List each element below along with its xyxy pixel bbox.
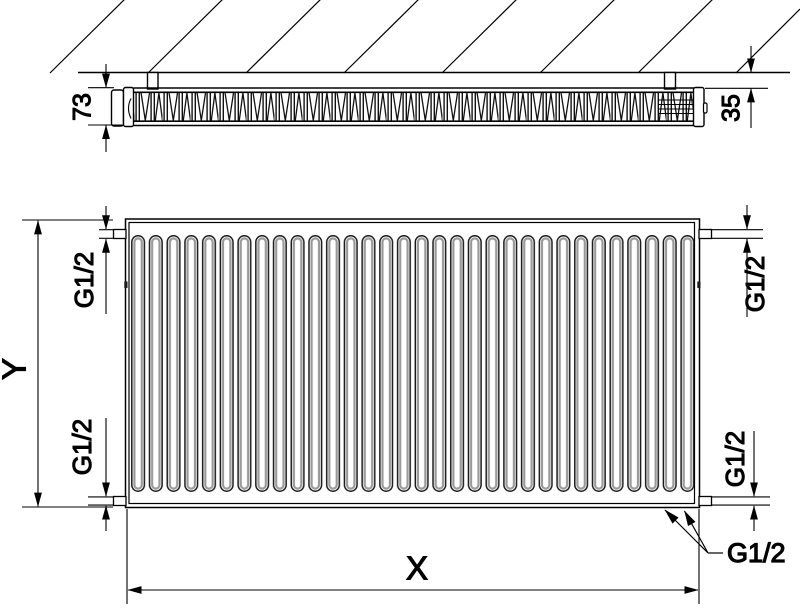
radiator-cross-section xyxy=(112,88,708,127)
dimension-thread-bottom-right: G1/2 xyxy=(712,431,771,531)
drawing-canvas: 73 35 G1/2 xyxy=(0,0,800,611)
left-boss xyxy=(112,90,124,126)
depth-value: 73 xyxy=(69,93,97,121)
convector-fins xyxy=(134,93,693,121)
thread-bottom-center-value: G1/2 xyxy=(727,538,786,568)
stub-top-right xyxy=(699,230,712,239)
dimension-thread-top-right: G1/2 xyxy=(712,205,770,317)
stub-bottom-left xyxy=(114,497,127,506)
height-value: Y xyxy=(0,358,33,380)
panel-channels xyxy=(131,235,694,492)
connection-leader: G1/2 xyxy=(665,510,786,568)
dimension-width: X xyxy=(127,509,699,604)
wall-hatching xyxy=(50,0,800,73)
dimension-thread-top-left: G1/2 xyxy=(69,206,114,314)
stub-top-left xyxy=(114,230,127,239)
right-boss xyxy=(704,103,708,113)
bracket-left xyxy=(148,73,159,90)
section-view: 73 35 xyxy=(50,0,800,152)
width-value: X xyxy=(406,550,428,587)
wall-brackets xyxy=(148,73,676,90)
radiator-technical-drawing: 73 35 G1/2 xyxy=(0,0,800,611)
thread-bottom-right-value: G1/2 xyxy=(720,431,750,487)
thread-bottom-left-value: G1/2 xyxy=(67,419,97,475)
dimension-wall-clearance: 35 xyxy=(705,46,768,128)
right-end-cap xyxy=(694,88,705,127)
dimension-thread-bottom-left: G1/2 xyxy=(67,418,114,531)
thread-top-right-value: G1/2 xyxy=(740,256,770,312)
front-view: G1/2 G1/2 G1/2 G1/2 xyxy=(0,205,786,604)
thread-top-left-value: G1/2 xyxy=(69,252,99,308)
stub-bottom-right xyxy=(699,497,712,506)
wall-clearance-value: 35 xyxy=(718,94,746,122)
bracket-right xyxy=(665,73,676,90)
